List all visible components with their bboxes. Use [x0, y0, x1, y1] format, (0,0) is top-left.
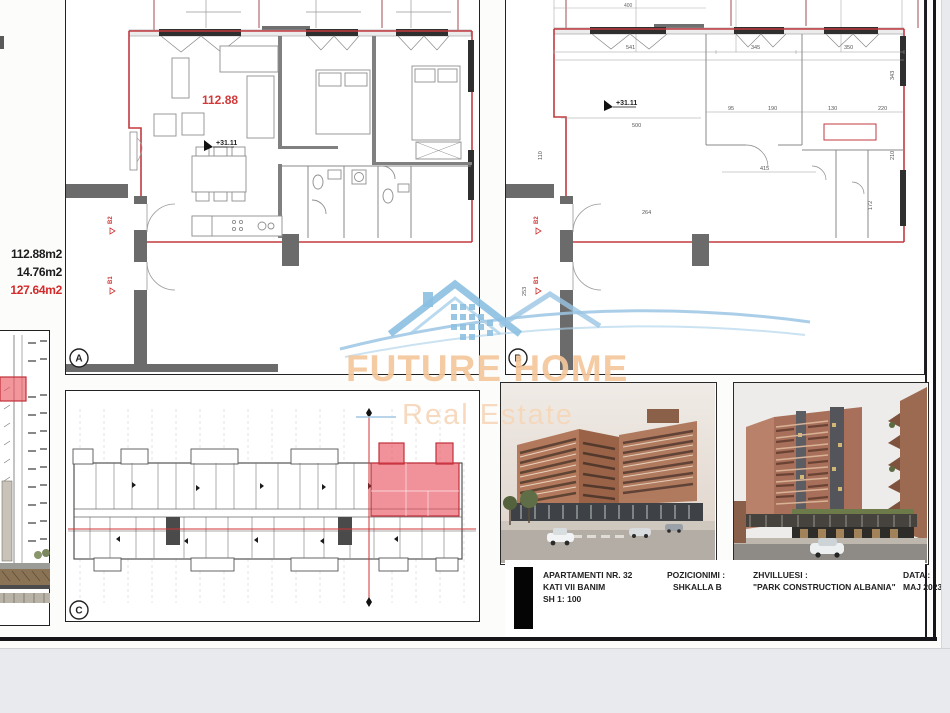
plan-b-dim: 253	[522, 287, 528, 296]
plan-b-elevation-label: +31.11	[616, 100, 637, 107]
plan-b-dim: 350	[844, 45, 853, 51]
floor-plan-b-panel: 400	[505, 0, 925, 375]
title-block-date: DATA : MAJ 2023	[903, 569, 942, 593]
plan-b-dim: 345	[751, 45, 760, 51]
plan-b-dim: 110	[538, 151, 544, 160]
floor-plan-a-panel: 112.88 +31.11 B2 B1 A	[65, 0, 480, 375]
plan-b-dim: 500	[632, 123, 641, 129]
sheet-bottom-border	[0, 637, 937, 641]
date-title: DATA :	[903, 569, 942, 581]
render-1-image	[501, 383, 715, 563]
highlighted-apartment	[371, 443, 459, 516]
building-plan-c-panel: C	[65, 390, 480, 622]
plan-b-dim: 220	[878, 106, 887, 112]
cutoff-mark	[0, 36, 4, 49]
title-block-position: POZICIONIMI : SHKALLA B	[667, 569, 725, 593]
building-section-drawing	[0, 331, 50, 625]
floor-plan-b-drawing: 400	[506, 0, 923, 372]
plan-a-marker-b2: B2	[108, 216, 114, 224]
section-strip-panel	[0, 330, 50, 626]
plan-a-area-label: 112.88	[202, 93, 238, 107]
plan-b-dim: 95	[728, 106, 734, 112]
floor-plan-a-drawing: 112.88 +31.11 B2 B1 A	[66, 0, 478, 372]
developer-value: "PARK CONSTRUCTION ALBANIA"	[753, 581, 896, 593]
sheet-right-border	[933, 0, 936, 641]
render-2-image	[734, 383, 927, 563]
floor-info: KATI VII BANIM	[543, 581, 632, 593]
title-block-apartment-info: APARTAMENTI NR. 32 KATI VII BANIM SH 1: …	[543, 569, 632, 605]
date-value: MAJ 2023	[903, 581, 942, 593]
area-value-total: 127.64m2	[0, 281, 62, 299]
title-block-developer: ZHVILLUESI : "PARK CONSTRUCTION ALBANIA"	[753, 569, 896, 593]
section-highlight-unit	[0, 377, 26, 401]
apartment-number: APARTAMENTI NR. 32	[543, 569, 632, 581]
plan-b-label: B	[514, 354, 521, 365]
sheet-page: 112.88m2 14.76m2 127.64m2	[0, 0, 941, 648]
plan-b-dim: 190	[768, 106, 777, 112]
area-values: 112.88m2 14.76m2 127.64m2	[0, 245, 62, 299]
building-plan-c-drawing: C	[66, 391, 478, 620]
plan-b-dim: 264	[642, 210, 651, 216]
background-band-right	[941, 0, 950, 648]
plan-b-dim: 210	[890, 151, 896, 160]
position-value: SHKALLA B	[667, 581, 725, 593]
area-value-net: 112.88m2	[0, 245, 62, 263]
plan-b-marker-b1: B1	[534, 276, 540, 284]
plan-b-dim: 130	[828, 106, 837, 112]
area-value-balcony: 14.76m2	[0, 263, 62, 281]
plan-a-marker-b1: B1	[108, 276, 114, 284]
scanned-sheet: 112.88m2 14.76m2 127.64m2	[0, 0, 950, 713]
scale-info: SH 1: 100	[543, 593, 632, 605]
position-title: POZICIONIMI :	[667, 569, 725, 581]
render-photo-1	[500, 382, 717, 565]
plan-c-label: C	[75, 606, 82, 617]
plan-b-dim: 541	[626, 45, 635, 51]
plan-b-dim: 343	[890, 71, 896, 80]
background-band-bottom	[0, 648, 950, 713]
title-block: APARTAMENTI NR. 32 KATI VII BANIM SH 1: …	[505, 560, 925, 637]
plan-a-label: A	[75, 354, 82, 365]
plan-a-elevation-label: +31.11	[216, 140, 237, 147]
plan-b-dim: 400	[624, 3, 633, 9]
developer-title: ZHVILLUESI :	[753, 569, 896, 581]
title-block-bar	[514, 567, 533, 629]
plan-b-dim: 172	[868, 201, 874, 210]
render-photo-2	[733, 382, 929, 565]
plan-b-marker-b2: B2	[534, 216, 540, 224]
